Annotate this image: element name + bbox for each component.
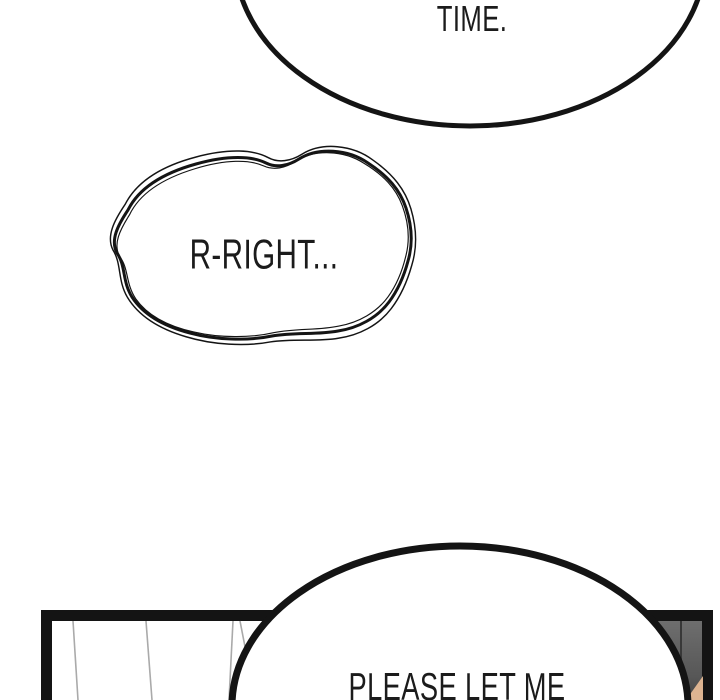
top-bubble-text: TIME.	[437, 0, 508, 40]
comic-artwork	[0, 0, 720, 700]
middle-bubble-text: R-RIGHT...	[190, 232, 339, 279]
bottom-bubble-text: PLEASE LET ME	[349, 666, 566, 700]
comic-page: TIME. R-RIGHT... PLEASE LET ME	[0, 0, 720, 700]
